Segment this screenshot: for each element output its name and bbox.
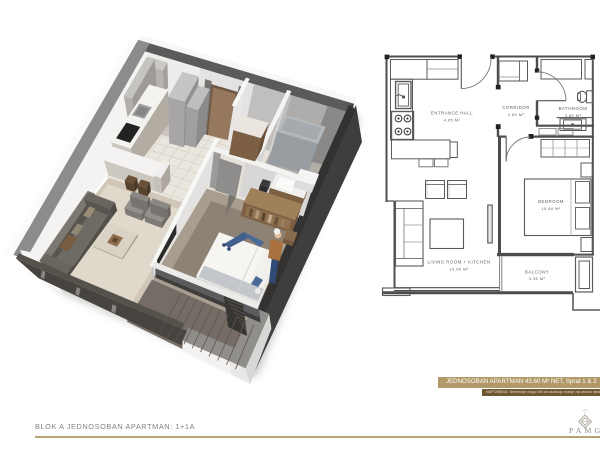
- svg-text:19.00 M²: 19.00 M²: [449, 267, 469, 272]
- svg-text:BALCONY: BALCONY: [525, 270, 549, 275]
- svg-text:3.80 M²: 3.80 M²: [565, 113, 582, 118]
- svg-text:3.35 M²: 3.35 M²: [529, 276, 546, 281]
- svg-text:LIVING ROOM + KITCHEN: LIVING ROOM + KITCHEN: [428, 260, 491, 265]
- svg-text:BEDROOM: BEDROOM: [538, 199, 564, 204]
- svg-text:BATHROOM: BATHROOM: [559, 106, 588, 111]
- svg-text:10.60 M²: 10.60 M²: [541, 206, 561, 211]
- svg-text:CORRIDOR: CORRIDOR: [502, 105, 530, 110]
- svg-text:4.05 M²: 4.05 M²: [444, 118, 461, 123]
- svg-text:2.60 M²: 2.60 M²: [508, 112, 525, 117]
- svg-text:ENTRANCE HALL: ENTRANCE HALL: [431, 111, 473, 116]
